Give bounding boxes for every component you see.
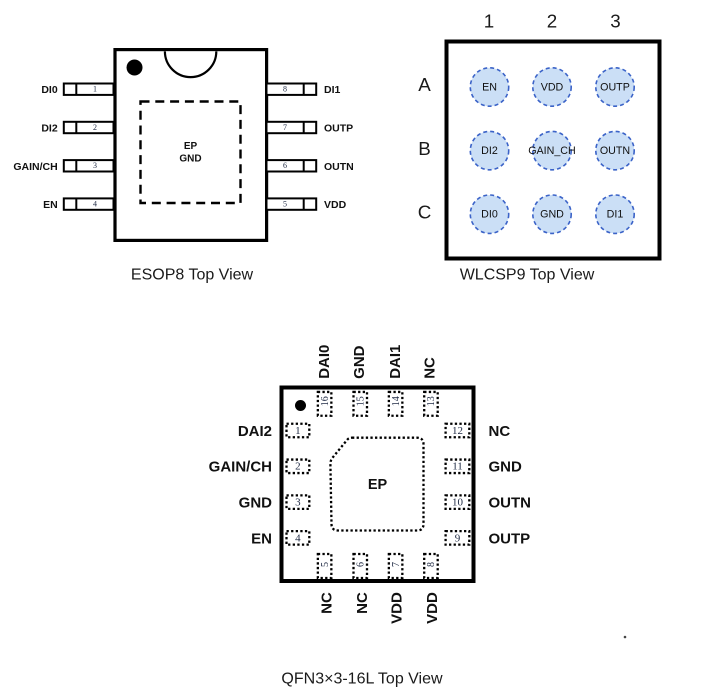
- svg-text:DI1: DI1: [607, 209, 624, 221]
- svg-text:A: A: [418, 74, 431, 95]
- svg-text:15: 15: [355, 396, 366, 406]
- svg-text:3: 3: [610, 11, 620, 32]
- svg-text:3: 3: [93, 161, 97, 170]
- svg-text:16: 16: [320, 396, 331, 406]
- svg-text:EP: EP: [184, 141, 198, 152]
- svg-text:GND: GND: [489, 459, 523, 476]
- svg-text:EP: EP: [368, 477, 388, 493]
- svg-text:C: C: [418, 202, 432, 223]
- svg-text:4: 4: [295, 532, 301, 544]
- svg-text:DI1: DI1: [324, 84, 341, 96]
- svg-text:OUTN: OUTN: [600, 145, 630, 157]
- svg-text:2: 2: [547, 11, 557, 32]
- svg-text:OUTP: OUTP: [489, 530, 531, 547]
- svg-text:OUTN: OUTN: [324, 161, 354, 173]
- svg-text:GND: GND: [239, 495, 273, 512]
- svg-text:6: 6: [283, 161, 287, 170]
- svg-text:EN: EN: [482, 82, 497, 94]
- svg-text:B: B: [418, 138, 431, 159]
- svg-text:VDD: VDD: [324, 199, 347, 211]
- svg-text:NC: NC: [489, 423, 511, 440]
- svg-text:VDD: VDD: [389, 592, 406, 624]
- svg-text:VDD: VDD: [541, 82, 564, 94]
- svg-text:7: 7: [391, 562, 402, 567]
- svg-text:EN: EN: [43, 199, 58, 211]
- svg-text:10: 10: [452, 497, 464, 509]
- svg-text:OUTP: OUTP: [324, 123, 353, 135]
- svg-text:EN: EN: [251, 530, 272, 547]
- svg-text:8: 8: [283, 85, 287, 94]
- svg-text:11: 11: [452, 461, 463, 473]
- svg-text:NC: NC: [354, 592, 371, 614]
- svg-text:DAI0: DAI0: [316, 345, 333, 379]
- svg-text:2: 2: [93, 123, 97, 132]
- svg-text:13: 13: [426, 396, 437, 406]
- svg-text:12: 12: [452, 425, 463, 437]
- svg-text:14: 14: [391, 396, 402, 406]
- svg-text:5: 5: [283, 199, 287, 208]
- svg-text:DI0: DI0: [41, 84, 58, 96]
- svg-text:GAIN/CH: GAIN/CH: [209, 459, 272, 476]
- svg-text:4: 4: [93, 199, 97, 208]
- svg-text:DI0: DI0: [481, 209, 498, 221]
- svg-text:7: 7: [283, 123, 287, 132]
- svg-text:OUTP: OUTP: [600, 82, 630, 94]
- svg-text:6: 6: [355, 562, 366, 567]
- svg-text:GAIN/CH: GAIN/CH: [13, 161, 57, 173]
- svg-text:NC: NC: [318, 592, 335, 614]
- svg-text:1: 1: [93, 85, 97, 94]
- svg-text:ESOP8 Top View: ESOP8 Top View: [131, 267, 254, 284]
- svg-text:1: 1: [484, 11, 494, 32]
- svg-text:GND: GND: [351, 345, 368, 379]
- svg-text:2: 2: [295, 461, 301, 473]
- svg-text:VDD: VDD: [424, 592, 441, 624]
- svg-text:WLCSP9 Top View: WLCSP9 Top View: [460, 267, 595, 284]
- svg-text:DAI2: DAI2: [238, 423, 272, 440]
- svg-text:NC: NC: [422, 357, 439, 379]
- svg-text:8: 8: [426, 562, 437, 567]
- svg-text:DI2: DI2: [41, 123, 58, 135]
- svg-text:GND: GND: [540, 209, 564, 221]
- svg-text:OUTN: OUTN: [489, 495, 532, 512]
- svg-text:DAI1: DAI1: [387, 345, 404, 379]
- svg-text:QFN3×3-16L Top View: QFN3×3-16L Top View: [281, 670, 443, 687]
- svg-text:DI2: DI2: [481, 145, 498, 157]
- svg-text:3: 3: [295, 497, 301, 509]
- svg-text:GAIN_CH: GAIN_CH: [528, 145, 576, 157]
- svg-text:1: 1: [295, 425, 301, 437]
- svg-text:GND: GND: [179, 154, 201, 165]
- svg-text:9: 9: [455, 532, 461, 544]
- svg-text:5: 5: [320, 562, 331, 567]
